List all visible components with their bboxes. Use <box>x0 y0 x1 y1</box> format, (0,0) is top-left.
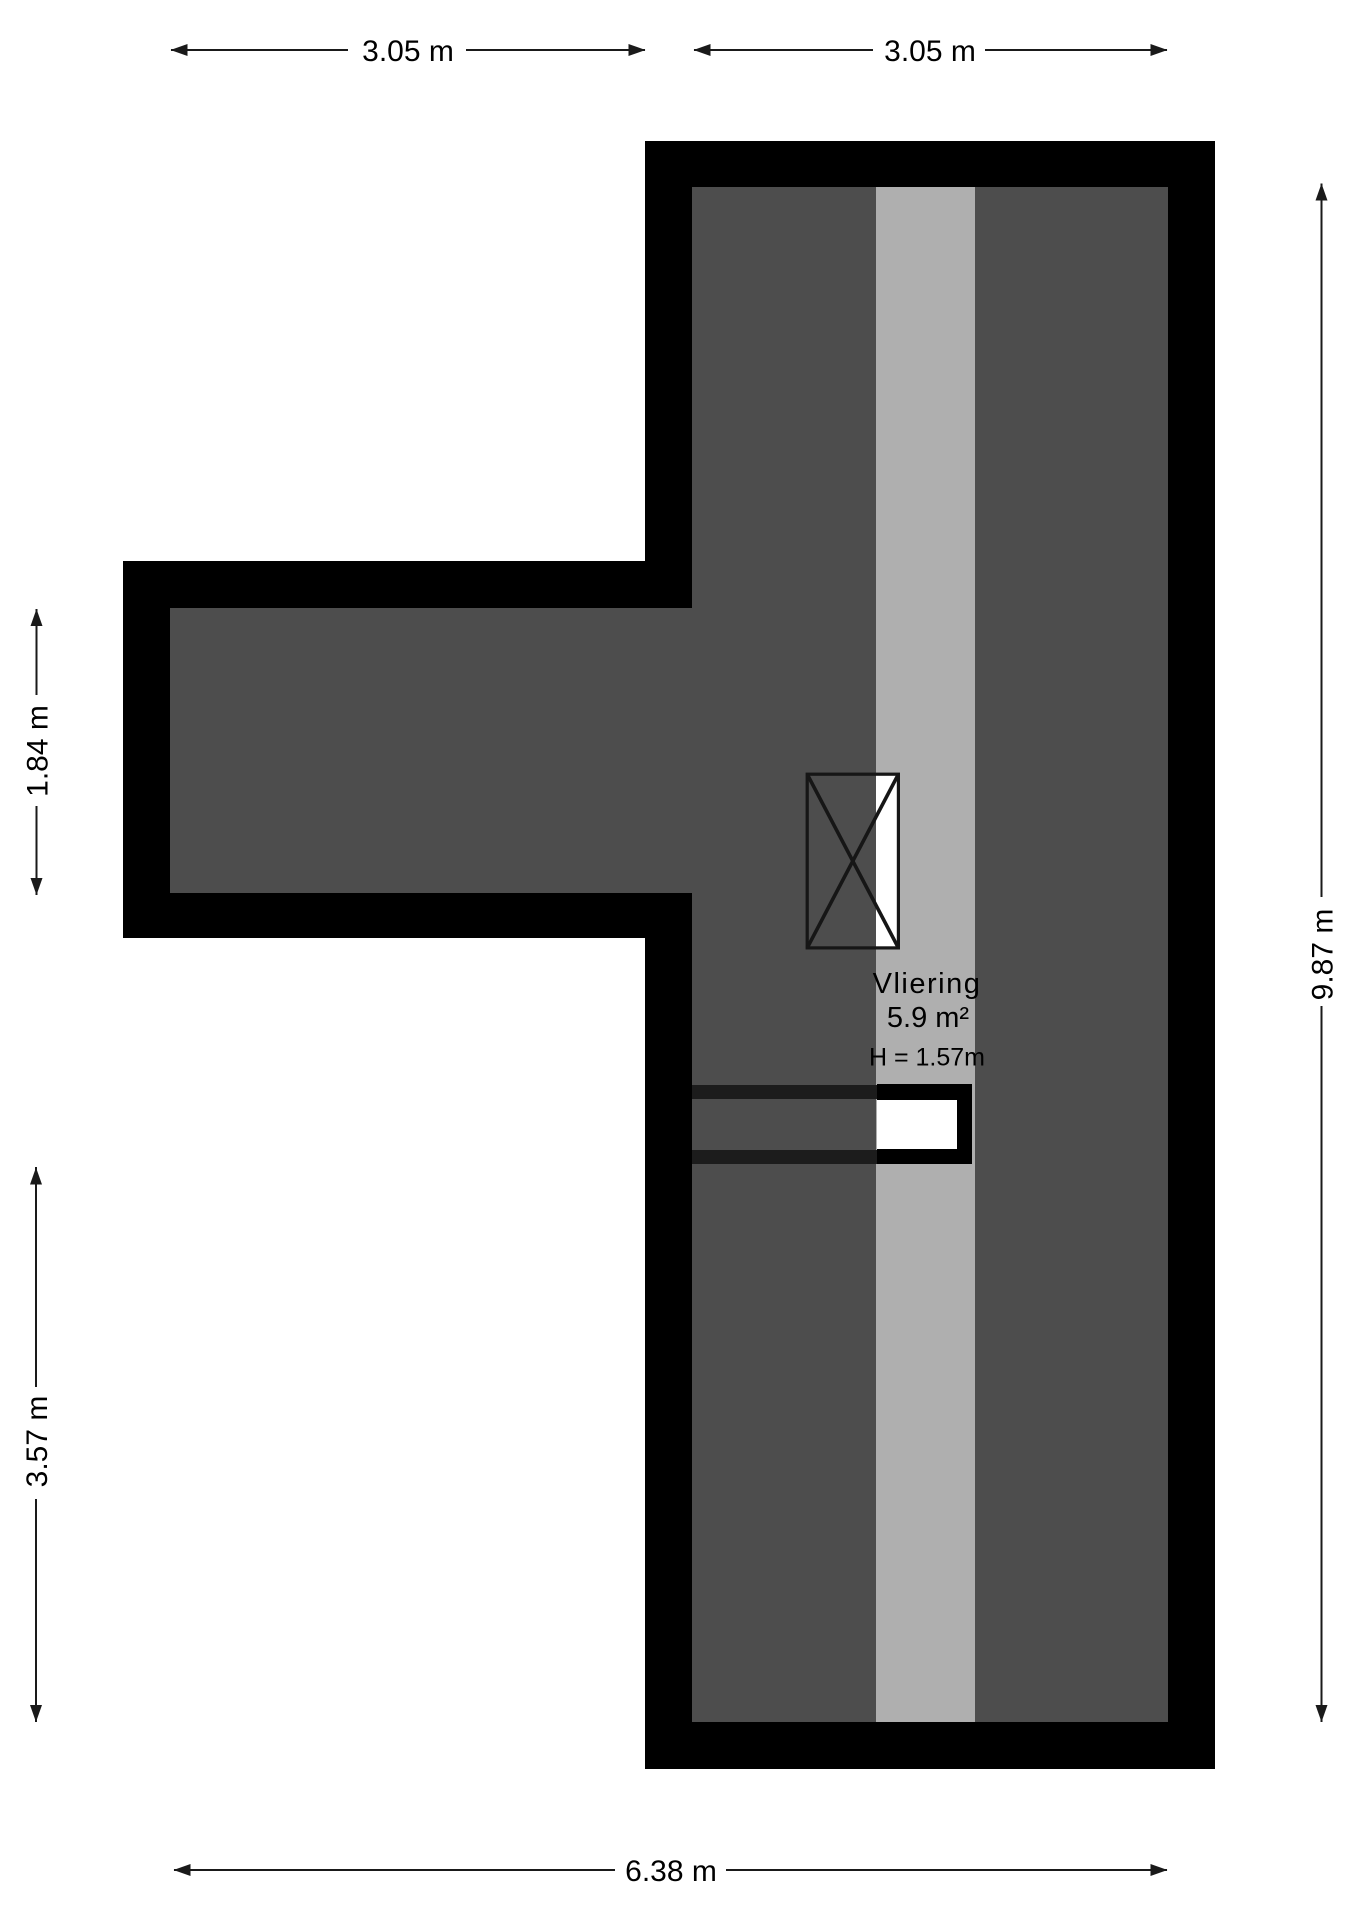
svg-text:3.57 m: 3.57 m <box>21 1396 54 1488</box>
svg-text:Vliering: Vliering <box>873 968 982 1000</box>
svg-text:3.05 m: 3.05 m <box>884 35 976 68</box>
svg-text:9.87 m: 9.87 m <box>1307 909 1340 1001</box>
svg-text:1.84 m: 1.84 m <box>22 705 55 797</box>
svg-text:5.9 m²: 5.9 m² <box>887 1002 970 1034</box>
svg-text:6.38 m: 6.38 m <box>625 1855 717 1888</box>
svg-text:H = 1.57m: H = 1.57m <box>869 1044 985 1072</box>
svg-text:3.05 m: 3.05 m <box>362 35 454 68</box>
